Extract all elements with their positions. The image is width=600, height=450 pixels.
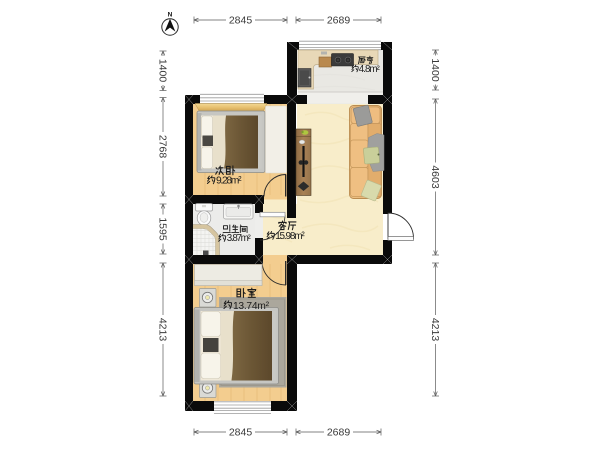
- svg-text:1400: 1400: [156, 59, 168, 83]
- svg-text:4213: 4213: [156, 318, 168, 342]
- svg-text:4213: 4213: [429, 318, 441, 342]
- svg-text:N: N: [168, 11, 173, 18]
- svg-text:15.98m²: 15.98m²: [275, 231, 305, 242]
- svg-text:4.8m²: 4.8m²: [359, 64, 381, 75]
- svg-text:2689: 2689: [327, 15, 351, 27]
- svg-text:1595: 1595: [156, 217, 168, 241]
- svg-text:13.74m²: 13.74m²: [233, 301, 270, 312]
- svg-text:2845: 2845: [229, 15, 253, 27]
- svg-text:2845: 2845: [229, 427, 253, 439]
- svg-text:1400: 1400: [429, 58, 441, 82]
- svg-text:2689: 2689: [327, 427, 351, 439]
- svg-text:3.87m²: 3.87m²: [227, 233, 252, 244]
- svg-text:4603: 4603: [429, 165, 441, 189]
- svg-text:2768: 2768: [156, 135, 168, 159]
- svg-text:9.28m²: 9.28m²: [216, 176, 242, 187]
